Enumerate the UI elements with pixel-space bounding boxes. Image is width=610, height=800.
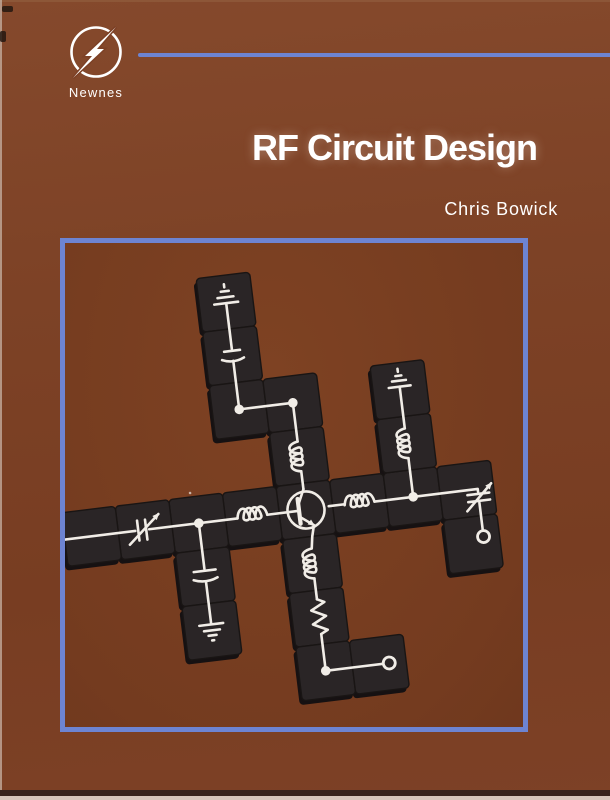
book-title: RF Circuit Design [252, 127, 537, 169]
photo-frame [60, 238, 528, 732]
newnes-logo: Newnes [64, 20, 130, 106]
book-author: Chris Bowick [444, 199, 558, 220]
accent-line [138, 53, 610, 57]
scan-speck [2, 6, 13, 12]
scan-edge-top [0, 0, 610, 2]
book-cover: Newnes RF Circuit Design Chris Bowick [0, 0, 610, 800]
newnes-wordmark: Newnes [69, 85, 123, 100]
scan-edge-left [0, 0, 2, 800]
scan-speck [0, 31, 6, 42]
scan-edge-bottom-light [0, 796, 610, 800]
